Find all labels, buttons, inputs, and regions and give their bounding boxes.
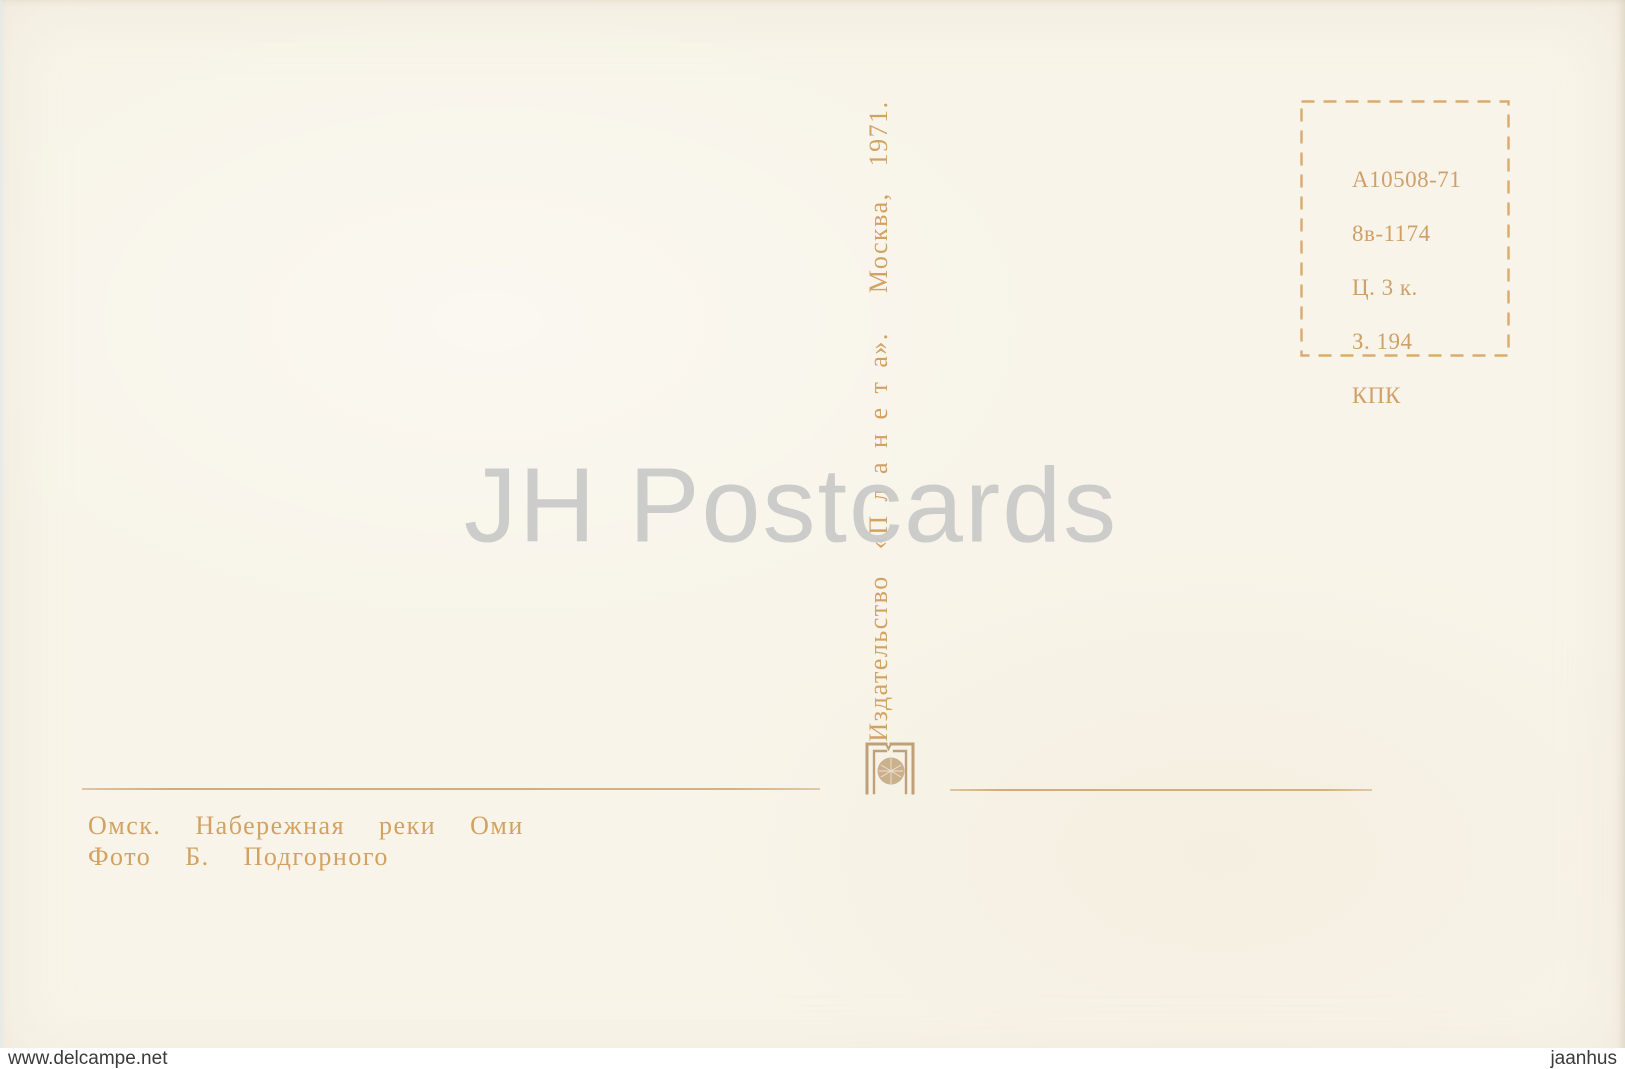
scan-edge <box>0 0 4 1069</box>
divider-rule-right <box>950 789 1372 791</box>
print-code-line: 8в-1174 <box>1352 221 1431 246</box>
site-watermark: JH Postcards <box>464 446 1118 567</box>
caption-photo-credit: Фото Б. Подгорного <box>88 842 389 872</box>
print-code-line: А10508-71 <box>1352 167 1461 192</box>
divider-rule-left <box>82 788 820 790</box>
postcard-scan: А10508-71 8в-1174 Ц. 3 к. З. 194 КПК Изд… <box>0 0 1625 1069</box>
caption-title: Омск. Набережная реки Оми <box>88 811 524 841</box>
footer-site-url: www.delcampe.net <box>8 1048 167 1069</box>
footer-seller-name: jaanhus <box>1550 1048 1617 1069</box>
planeta-logo-icon <box>860 738 920 795</box>
price-line: Ц. 3 к. <box>1352 275 1418 300</box>
footer-strip: www.delcampe.net jaanhus <box>0 1048 1625 1069</box>
publisher-imprint: Издательство «П л а н е т а». Москва, 19… <box>864 100 894 741</box>
order-line: З. 194 <box>1352 329 1413 354</box>
printer-line: КПК <box>1352 383 1401 408</box>
stamp-box-print-codes: А10508-71 8в-1174 Ц. 3 к. З. 194 КПК <box>1352 166 1461 409</box>
